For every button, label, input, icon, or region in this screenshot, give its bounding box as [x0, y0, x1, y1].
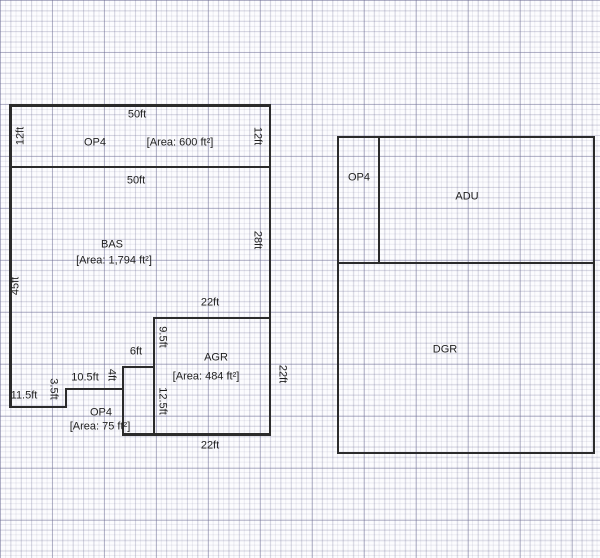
dim-label-step-rise-2: 4ft	[105, 369, 118, 381]
wall-bottom-west	[9, 406, 67, 409]
wall-notch-top	[122, 366, 155, 368]
dim-label-notch-top: 6ft	[130, 346, 142, 359]
room-region-op4-right[interactable]	[337, 136, 378, 262]
room-label-agr: AGR	[204, 352, 228, 365]
room-label-op4-right: OP4	[348, 172, 370, 185]
wall-right-bottom	[337, 452, 595, 454]
dim-label-op4-top-left: 12ft	[15, 127, 28, 145]
sketch-canvas: 50ft 12ft 12ft 50ft 45ft 28ft 22ft 9.5ft…	[0, 0, 600, 558]
dim-label-bas-top: 50ft	[127, 175, 145, 188]
dim-label-agr-bottom: 22ft	[201, 440, 219, 453]
dim-label-op4-top-width: 50ft	[128, 109, 146, 122]
wall-agr-top	[153, 317, 271, 319]
wall-left-east	[269, 104, 272, 436]
wall-right-east	[593, 136, 595, 454]
area-label-op4-bottom: [Area: 75 ft²]	[70, 421, 131, 434]
wall-step-mid	[65, 388, 124, 390]
wall-right-west	[337, 136, 339, 454]
room-region-dgr[interactable]	[337, 262, 593, 452]
room-label-op4-top: OP4	[84, 137, 106, 150]
room-label-bas: BAS	[101, 239, 123, 252]
wall-left-divider	[9, 166, 271, 169]
dim-label-bas-left: 45ft	[10, 277, 23, 295]
wall-right-divider-h	[337, 262, 595, 264]
room-region-adu[interactable]	[378, 136, 593, 262]
dim-label-step-mid: 10.5ft	[71, 372, 99, 385]
room-label-adu: ADU	[455, 191, 478, 204]
area-label-agr: [Area: 484 ft²]	[173, 371, 240, 384]
dim-label-agr-left-lower: 12.5ft	[156, 387, 169, 415]
dim-label-agr-left-upper: 9.5ft	[156, 326, 169, 347]
wall-bottom-south	[122, 433, 272, 436]
dim-label-agr-top: 22ft	[201, 297, 219, 310]
wall-left-top	[9, 104, 271, 107]
dim-label-step-bottom: 11.5ft	[11, 390, 38, 403]
area-label-bas: [Area: 1,794 ft²]	[76, 255, 152, 268]
wall-agr-west	[153, 317, 155, 436]
wall-right-divider-v	[378, 136, 380, 264]
dim-label-bas-right: 28ft	[251, 231, 264, 249]
room-label-op4-bottom: OP4	[90, 407, 112, 420]
room-label-dgr: DGR	[433, 344, 457, 357]
wall-left-west	[9, 104, 12, 408]
area-label-op4-top: [Area: 600 ft²]	[147, 137, 214, 150]
dim-label-op4-top-right: 12ft	[251, 127, 264, 145]
wall-right-top	[337, 136, 595, 138]
dim-label-step-rise-1: 3.5ft	[47, 378, 60, 399]
dim-label-agr-right: 22ft	[276, 365, 289, 383]
